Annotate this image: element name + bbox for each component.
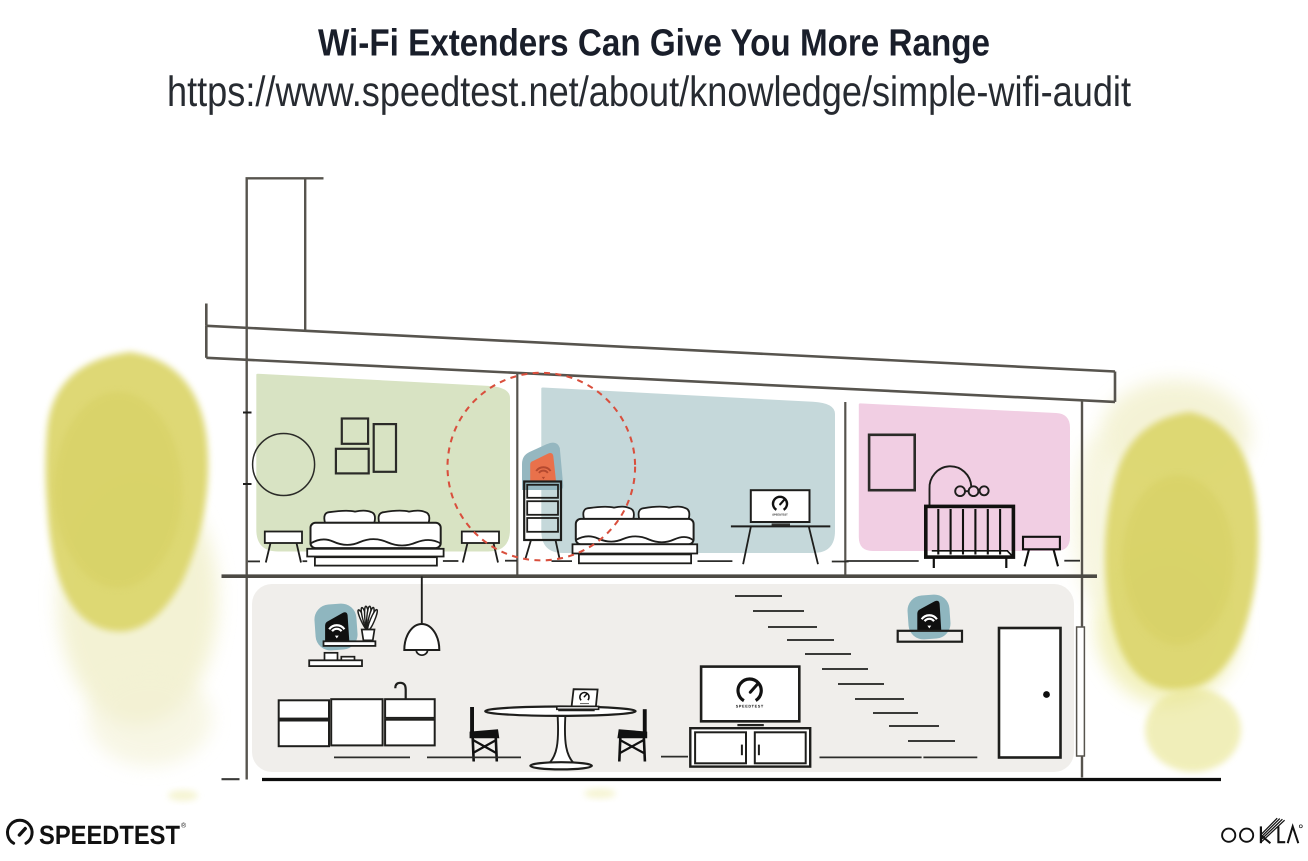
svg-text:Wi-Fi Extenders Can Give You M: Wi-Fi Extenders Can Give You More Range (318, 23, 990, 65)
svg-text:®: ® (181, 823, 187, 830)
svg-text:https://www.speedtest.net/abou: https://www.speedtest.net/about/knowledg… (167, 69, 1131, 116)
svg-text:SPEEDTEST: SPEEDTEST (39, 820, 180, 850)
svg-text:SPEEDTEST: SPEEDTEST (772, 514, 788, 517)
svg-text:SPEEDTEST: SPEEDTEST (736, 704, 764, 708)
